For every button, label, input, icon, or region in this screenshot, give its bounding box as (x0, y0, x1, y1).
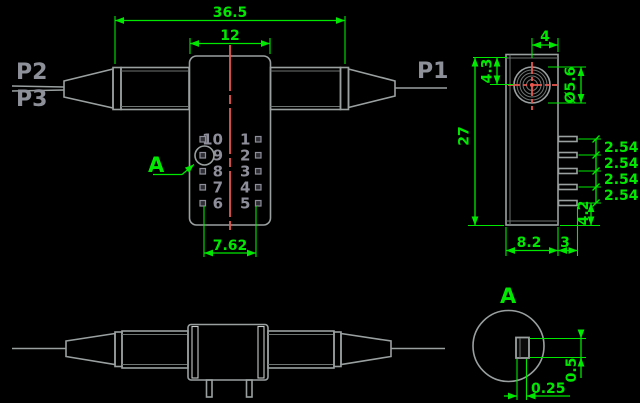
dim-27-label: 27 (457, 126, 473, 145)
right-boot-cone (349, 69, 396, 108)
detail-view-a: A 0.5 0.25 (473, 284, 586, 400)
front-center-block (188, 325, 268, 381)
dim-dia-5-6-label: Ø5.6 (563, 67, 579, 104)
front-flange-right (258, 327, 264, 379)
detail-pin-section (516, 338, 529, 359)
svg-text:4.2: 4.2 (576, 201, 592, 226)
pin-pad-4 (256, 185, 262, 191)
pin-pad-8 (200, 169, 206, 175)
dim-pitch-3: 2.54 (604, 172, 639, 188)
left-collar-ring (113, 68, 121, 110)
svg-text:4.3: 4.3 (480, 59, 496, 84)
pin-label-6: 6 (213, 195, 223, 213)
pin-pad-1 (256, 137, 262, 143)
front-left-boot (66, 334, 115, 365)
front-flange-left (192, 327, 198, 379)
left-cylinder (121, 68, 189, 110)
side-pin-5 (559, 201, 578, 206)
dim-4-2-label: 4.2 (576, 201, 592, 226)
front-left-cylinder (122, 331, 188, 368)
pin-pad-7 (200, 185, 206, 191)
dim-pitch-2: 2.54 (604, 156, 639, 172)
dim-0-5-label: 0.5 (564, 358, 580, 383)
pin-pad-5 (256, 201, 262, 207)
side-view-dimensions: 4 4.3 27 Ø5.6 (457, 29, 639, 256)
front-right-cylinder (268, 331, 334, 368)
pin-pad-2 (256, 153, 262, 159)
drawing-canvas: 10 9 8 7 6 1 2 3 4 5 A 36.5 12 (0, 0, 640, 403)
pin-pad-6 (200, 201, 206, 207)
dim-7-62: 7.62 (213, 238, 248, 254)
front-view (12, 325, 445, 398)
side-pin-1 (559, 137, 578, 142)
front-pin-right (247, 380, 253, 397)
side-pin-2 (559, 153, 578, 158)
dim-3: 3 (560, 235, 570, 251)
port-label-p2: P2 (16, 60, 47, 85)
front-right-boot (341, 334, 391, 365)
detail-callout-label: A (148, 153, 165, 177)
top-view: 10 9 8 7 6 1 2 3 4 5 A 36.5 12 (12, 5, 448, 257)
pin-pad-3 (256, 169, 262, 175)
dim-12: 12 (220, 28, 239, 44)
port-label-p3: P3 (16, 87, 47, 112)
dim-pitch-4: 2.54 (604, 188, 639, 204)
svg-text:27: 27 (457, 126, 473, 145)
detail-circle (473, 311, 544, 382)
front-right-ring (334, 332, 341, 367)
svg-text:0.5: 0.5 (564, 358, 580, 383)
engineering-drawing: 10 9 8 7 6 1 2 3 4 5 A 36.5 12 (0, 0, 640, 403)
left-boot-cone (64, 69, 113, 108)
dim-pitch-1: 2.54 (604, 140, 639, 156)
dim-4: 4 (540, 29, 550, 45)
port-label-p1: P1 (417, 59, 448, 84)
side-pin-3 (559, 169, 578, 174)
detail-view-label: A (500, 284, 517, 308)
dim-36-5: 36.5 (213, 5, 248, 21)
front-pin-left (207, 380, 213, 397)
dim-0-25: 0.25 (531, 381, 566, 397)
dim-4-3-label: 4.3 (480, 59, 496, 84)
right-cylinder (271, 68, 341, 110)
pin-label-5: 5 (240, 195, 250, 213)
dim-8-2: 8.2 (517, 235, 542, 251)
side-view: 4 4.3 27 Ø5.6 (457, 29, 639, 256)
right-collar-ring (341, 68, 349, 110)
svg-text:Ø5.6: Ø5.6 (563, 67, 579, 104)
pin-pad-9 (200, 153, 206, 159)
side-pin-4 (559, 185, 578, 190)
front-left-ring (115, 332, 122, 367)
